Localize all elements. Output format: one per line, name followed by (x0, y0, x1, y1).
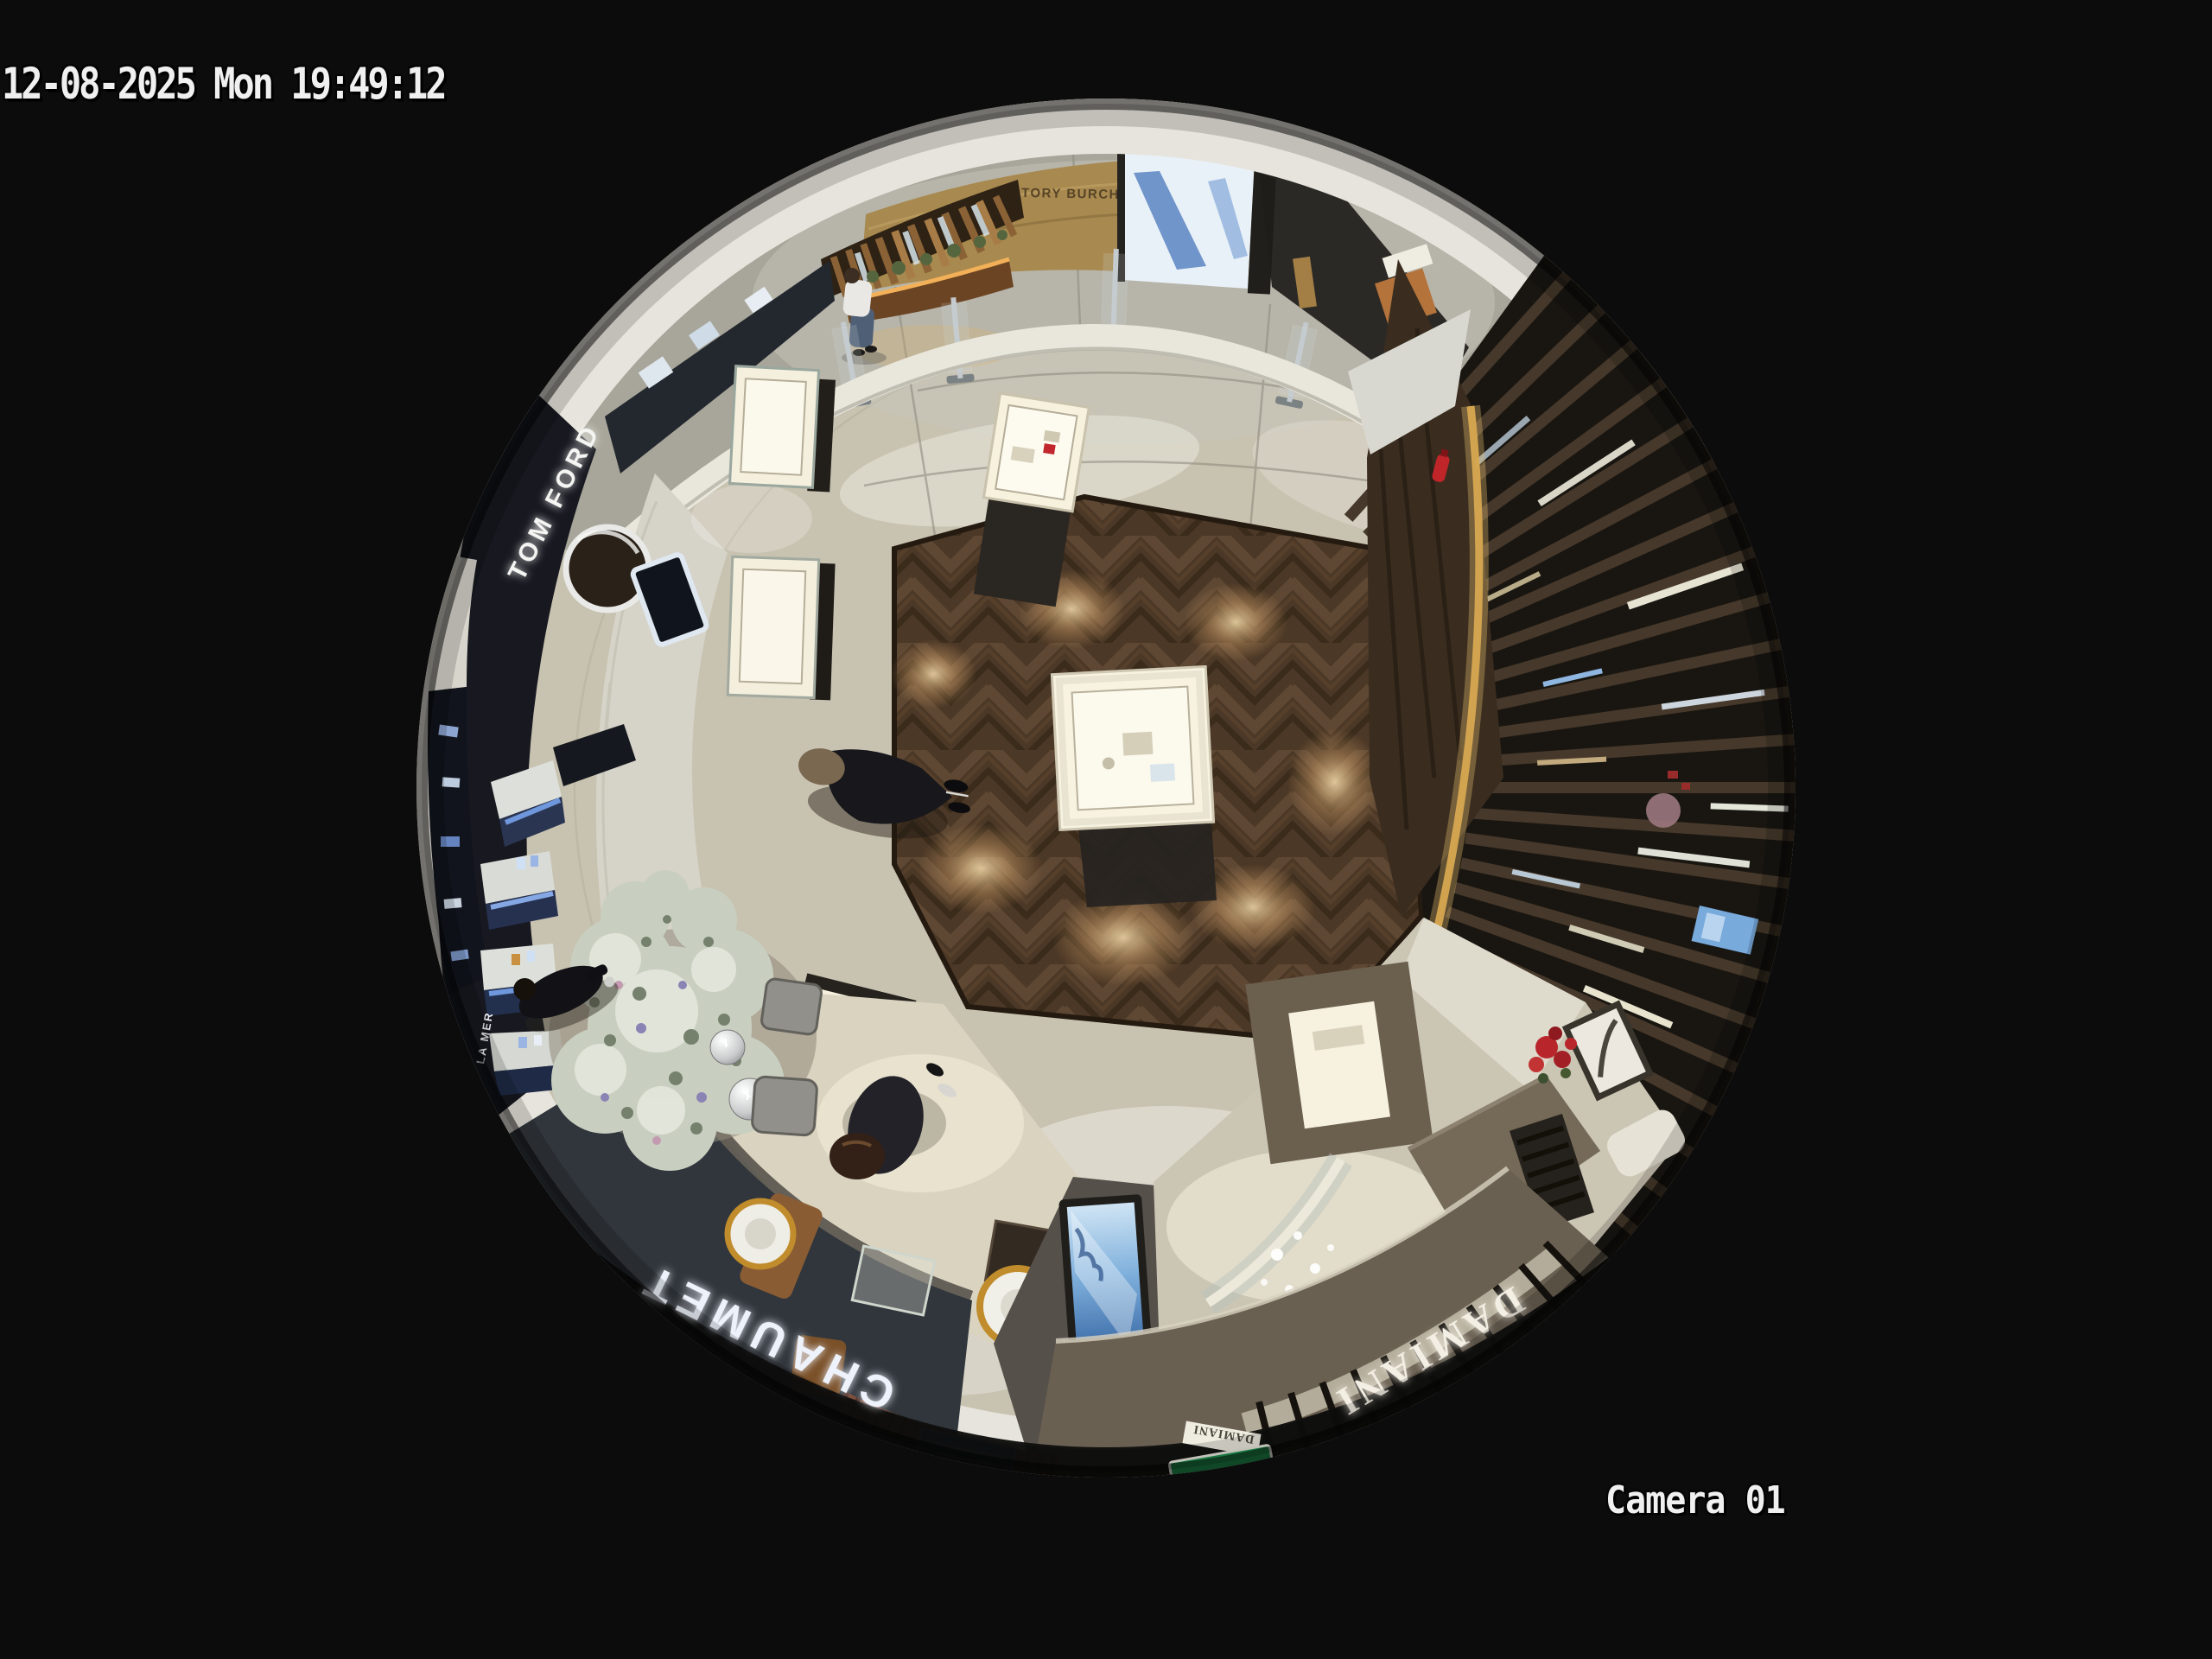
gold-ring-pedestal (728, 1201, 793, 1267)
tory-burch-sign: TORY BURCH (1021, 186, 1120, 202)
red-shelf-item (1668, 771, 1678, 779)
floor-highlight (691, 484, 812, 553)
red-shelf-item (1681, 783, 1690, 790)
damiani-vitrine (1288, 1001, 1390, 1129)
exit-sign-label: ÇIKIŞ EXIT (1197, 1480, 1265, 1504)
person-behind-slats (1646, 793, 1681, 828)
camera-label-overlay: Camera 01 (1605, 1479, 1785, 1522)
planter-pot (752, 1077, 817, 1136)
vitrine-left-a (729, 366, 836, 493)
red-jewel-box (1043, 443, 1056, 454)
fisheye-scene: TORY BURCH (0, 0, 2212, 1659)
exit-arrow-icon (1191, 1475, 1211, 1492)
vitrine-center-base (1078, 821, 1217, 907)
planter-pot (760, 978, 822, 1035)
person-hair (829, 1133, 885, 1179)
cctv-frame: TORY BURCH (0, 0, 2212, 1659)
person-head (844, 268, 860, 283)
lens-circle: TORY BURCH (173, 0, 2160, 1659)
person-shoe (865, 346, 877, 353)
mall-corridor: TORY BURCH (173, 0, 2074, 581)
vitrine-left-b (728, 556, 836, 700)
mirror-ball (710, 1030, 745, 1065)
person-shirt (842, 279, 873, 318)
timestamp-overlay: 12-08-2025 Mon 19:49:12 (2, 59, 445, 109)
vitrine-center (1052, 666, 1213, 829)
